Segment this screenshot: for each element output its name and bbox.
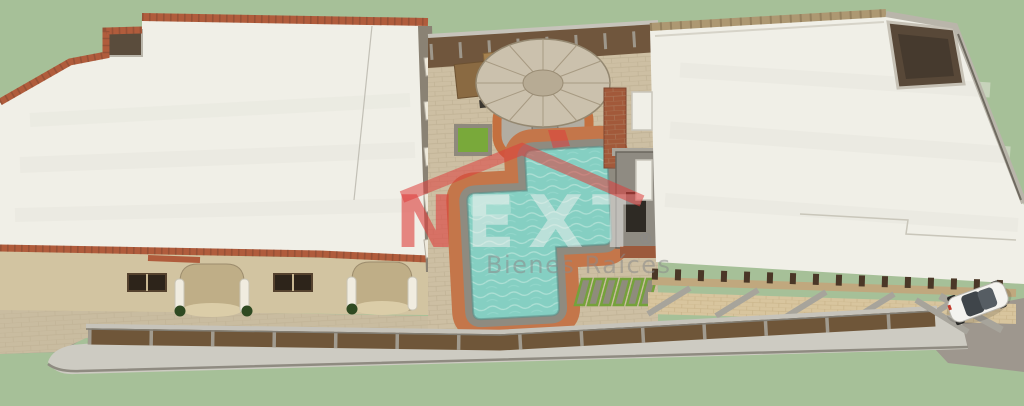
shrub xyxy=(347,304,358,315)
roof-courtyard-floor xyxy=(898,34,954,79)
palapa-thatch xyxy=(476,39,610,127)
logo-tagline: Bienes Raíces xyxy=(486,251,672,279)
porch-arch xyxy=(175,264,253,317)
porch-arch xyxy=(347,262,418,315)
render-viewport: N E X T ® Bienes Raíces xyxy=(0,0,1024,406)
parapet-step xyxy=(632,92,652,130)
facade-window xyxy=(128,274,166,291)
left-building xyxy=(0,17,452,317)
property-render: N E X T ® Bienes Raíces xyxy=(0,0,1024,406)
courtyard xyxy=(428,22,668,336)
logo-registered-mark: ® xyxy=(638,230,653,248)
planter-box xyxy=(456,126,490,154)
shrub xyxy=(175,306,186,317)
shrub xyxy=(242,306,253,317)
porch-column xyxy=(408,277,417,310)
facade-window xyxy=(274,274,312,291)
